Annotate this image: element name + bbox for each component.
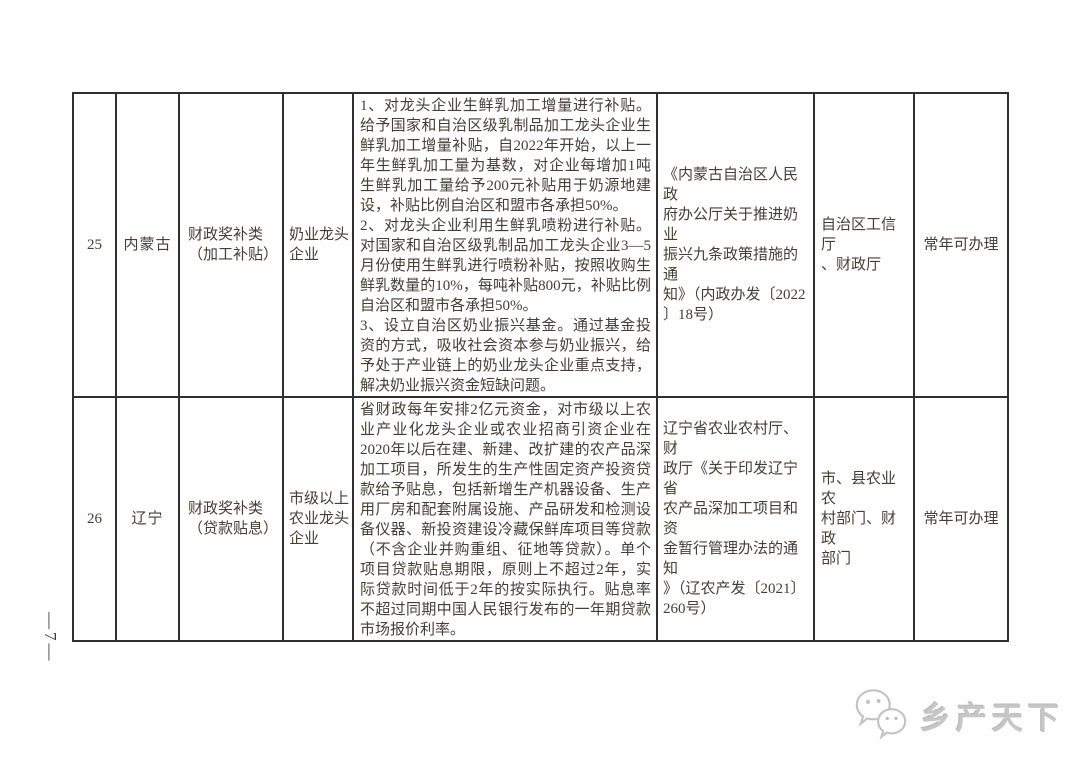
- departments-cell: 自治区工信厅 、财政厅: [814, 93, 914, 397]
- province-cell: 辽宁: [116, 397, 179, 641]
- policy-document-cell: 辽宁省农业农村厅、财 政厅《关于印发辽宁省 农产品深加工项目和资 金暂行管理办法…: [657, 397, 814, 641]
- policy-paragraph: 1、对龙头企业生鲜乳加工增量进行补贴。给予国家和自治区级乳制品加工龙头企业生鲜乳…: [360, 96, 651, 216]
- table-row-26: 26 辽宁 财政奖补类（贷款贴息） 市级以上农业龙头企业 省财政每年安排2亿元资…: [73, 397, 1008, 641]
- watermark-text: 乡产天下: [920, 693, 1064, 738]
- table-row-25: 25 内蒙古 财政奖补类（加工补贴） 奶业龙头企业 1、对龙头企业生鲜乳加工增量…: [73, 93, 1008, 397]
- policy-paragraph: 3、设立自治区奶业振兴基金。通过基金投资的方式，吸收社会资本参与奶业振兴，给予处…: [360, 316, 651, 396]
- target-enterprise-cell: 奶业龙头企业: [283, 93, 353, 397]
- departments-cell: 市、县农业农 村部门、财政 部门: [814, 397, 914, 641]
- watermark: 乡产天下: [850, 685, 1064, 745]
- target-enterprise-cell: 市级以上农业龙头企业: [283, 397, 353, 641]
- row-index-cell: 25: [73, 93, 116, 397]
- policy-table: 25 内蒙古 财政奖补类（加工补贴） 奶业龙头企业 1、对龙头企业生鲜乳加工增量…: [72, 92, 1009, 642]
- category-cell: 财政奖补类（加工补贴）: [179, 93, 283, 397]
- chat-bubbles-logo-icon: [850, 685, 912, 745]
- row-index-cell: 26: [73, 397, 116, 641]
- province-cell: 内蒙古: [116, 93, 179, 397]
- policy-paragraph: 省财政每年安排2亿元资金，对市级以上农业产业化龙头企业或农业招商引资企业在202…: [360, 400, 651, 640]
- policy-description-cell: 省财政每年安排2亿元资金，对市级以上农业产业化龙头企业或农业招商引资企业在202…: [353, 397, 657, 641]
- policy-description-cell: 1、对龙头企业生鲜乳加工增量进行补贴。给予国家和自治区级乳制品加工龙头企业生鲜乳…: [353, 93, 657, 397]
- document-page: 25 内蒙古 财政奖补类（加工补贴） 奶业龙头企业 1、对龙头企业生鲜乳加工增量…: [0, 0, 1080, 763]
- category-cell: 财政奖补类（贷款贴息）: [179, 397, 283, 641]
- policy-document-cell: 《内蒙古自治区人民政 府办公厅关于推进奶业 振兴九条政策措施的通 知》（内政办发…: [657, 93, 814, 397]
- availability-cell: 常年可办理: [914, 397, 1008, 641]
- policy-paragraph: 2、对龙头企业利用生鲜乳喷粉进行补贴。对国家和自治区级乳制品加工龙头企业3—5月…: [360, 216, 651, 316]
- availability-cell: 常年可办理: [914, 93, 1008, 397]
- page-number: —7—: [40, 612, 60, 664]
